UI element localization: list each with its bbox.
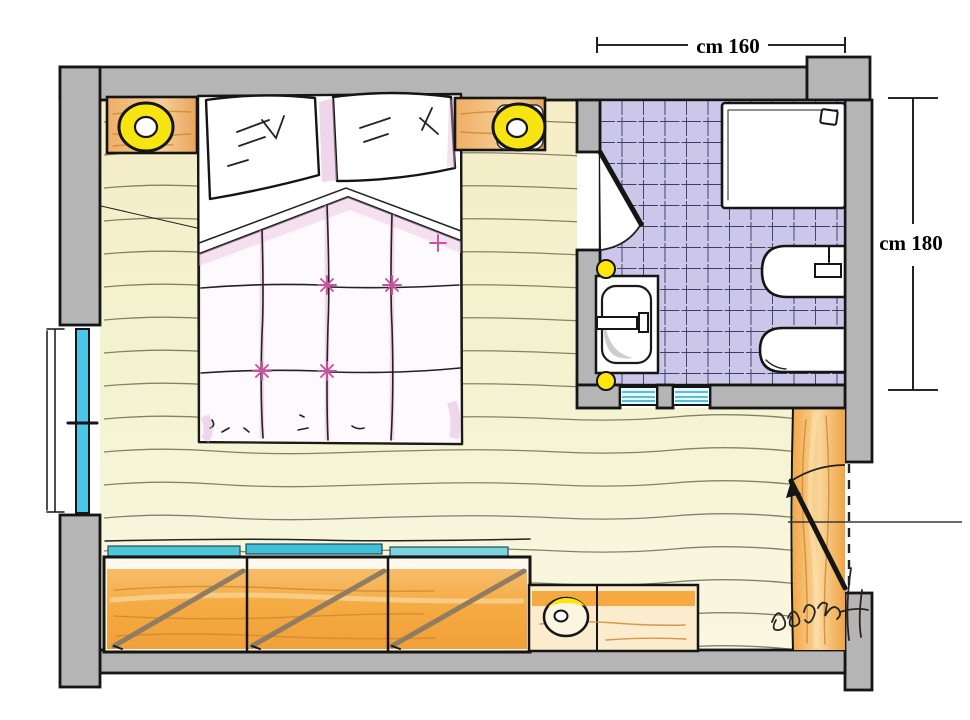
bidet-tap (815, 264, 841, 277)
wardrobe-rail-middle (246, 544, 382, 554)
wardrobe (104, 539, 530, 652)
basin-tap (597, 317, 637, 329)
wall-top-right-pillar (807, 57, 870, 100)
dimension-top: cm 160 (597, 34, 845, 58)
pillow-right (333, 93, 455, 181)
wardrobe-rail-right (390, 547, 508, 556)
nightstand-right (455, 98, 545, 150)
bench (529, 585, 698, 651)
nightstand-left (107, 97, 197, 153)
partition-wall-upper (577, 100, 600, 152)
wall-right-lower (845, 593, 872, 690)
dimension-right-label: cm 180 (879, 231, 943, 255)
wall-right-upper (845, 100, 872, 462)
washbasin (596, 276, 658, 373)
bathroom-wall-post (657, 385, 673, 408)
wardrobe-rail-left (108, 546, 240, 556)
wall-left-lower (60, 515, 100, 687)
glass-panel-left (620, 387, 657, 405)
bathroom-wall-bottom-right (710, 385, 845, 408)
floor-plan-drawing: cm 160 cm 180 (0, 0, 970, 720)
right-cabinet (792, 408, 846, 650)
window-glazing (76, 329, 89, 513)
floor-plan-canvas: cm 160 cm 180 (0, 0, 970, 720)
glass-panel-right (673, 387, 710, 405)
bidet (762, 246, 845, 297)
window (47, 328, 97, 513)
bathroom (577, 100, 845, 408)
bathroom-wall-bottom-left (577, 385, 620, 408)
shower-drain (820, 109, 838, 125)
dimension-right: cm 180 (879, 98, 943, 390)
wall-left-upper (60, 67, 100, 325)
dimension-top-label: cm 160 (696, 34, 760, 58)
toilet (760, 328, 845, 372)
wall-light-upper (597, 260, 615, 278)
wall-light-lower (597, 372, 615, 390)
shower-tray (722, 103, 845, 208)
